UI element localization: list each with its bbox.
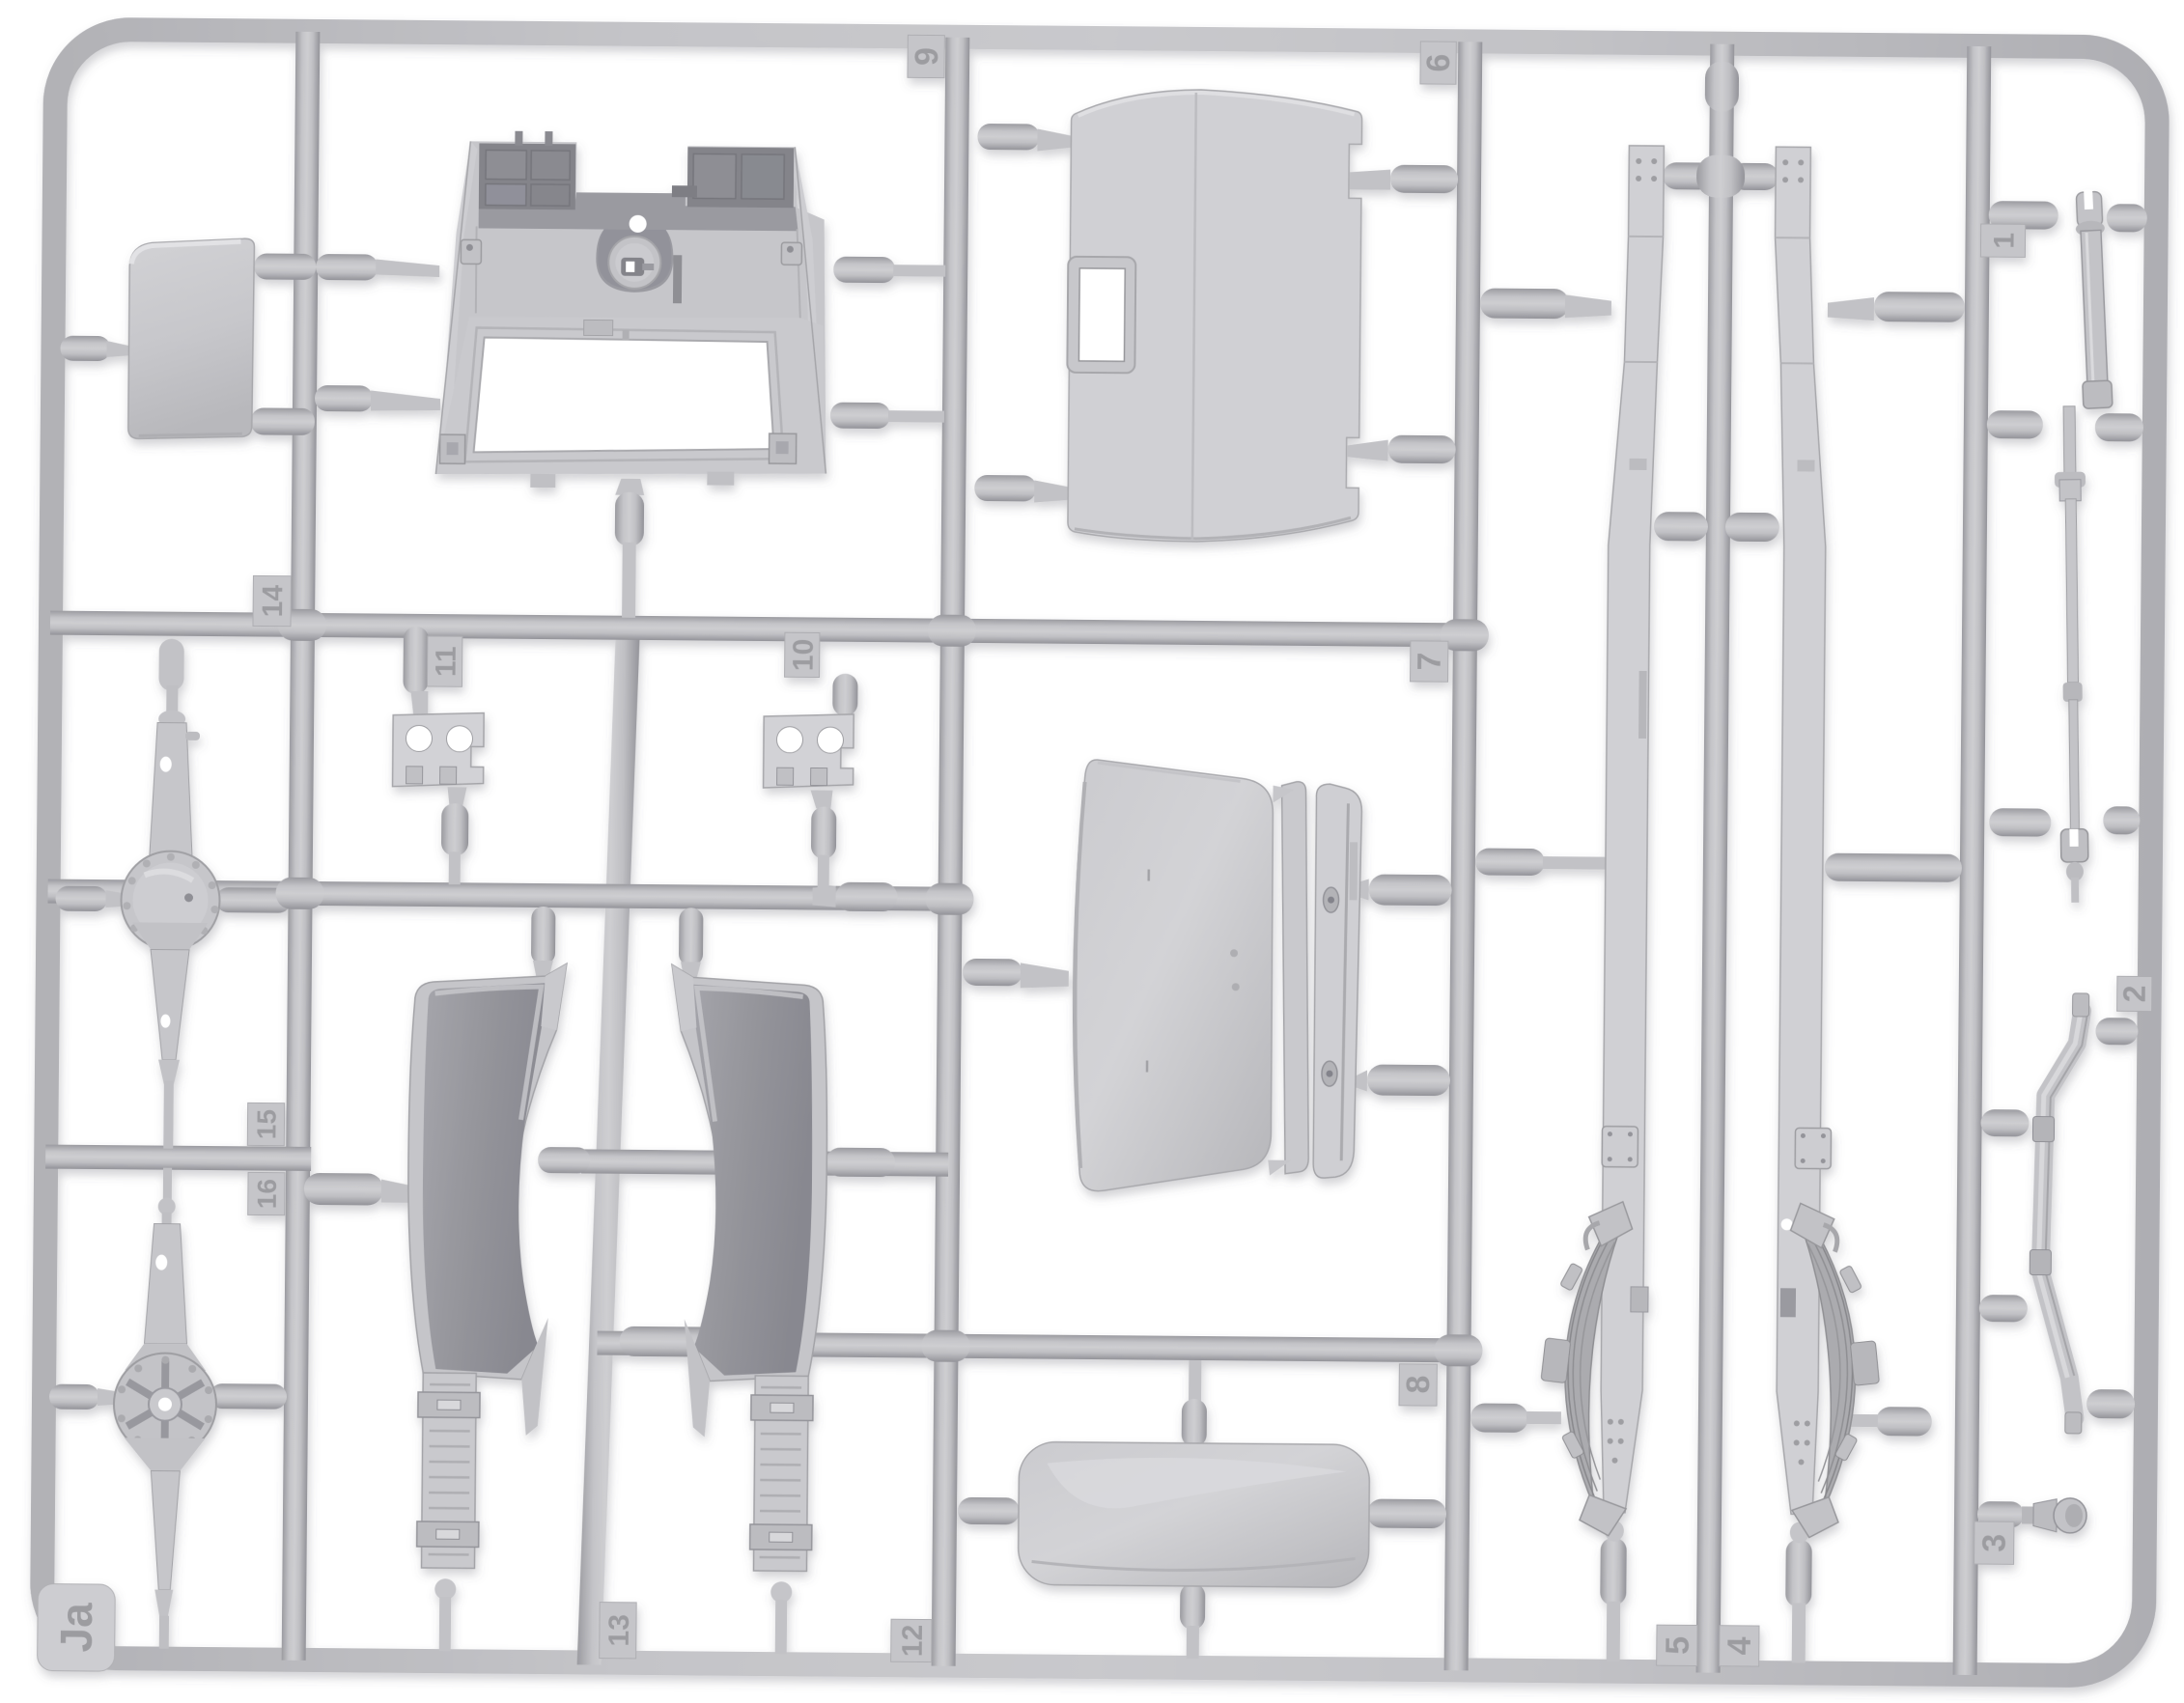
svg-text:11: 11 xyxy=(431,646,462,677)
svg-text:13: 13 xyxy=(603,1614,635,1647)
svg-text:6: 6 xyxy=(1420,53,1457,71)
svg-text:5: 5 xyxy=(1660,1636,1696,1655)
svg-text:14: 14 xyxy=(257,584,289,617)
svg-text:7: 7 xyxy=(1412,652,1448,670)
svg-text:8: 8 xyxy=(1400,1375,1437,1393)
svg-text:10: 10 xyxy=(788,639,820,672)
svg-text:3: 3 xyxy=(1976,1534,2013,1552)
svg-text:2: 2 xyxy=(2117,985,2152,1002)
svg-text:4: 4 xyxy=(1722,1636,1758,1655)
svg-text:16: 16 xyxy=(252,1179,282,1209)
svg-text:15: 15 xyxy=(251,1109,281,1139)
svg-text:9: 9 xyxy=(909,47,945,66)
svg-text:1: 1 xyxy=(1988,233,2020,249)
svg-text:12: 12 xyxy=(897,1625,929,1658)
svg-text:Ja: Ja xyxy=(51,1603,101,1653)
